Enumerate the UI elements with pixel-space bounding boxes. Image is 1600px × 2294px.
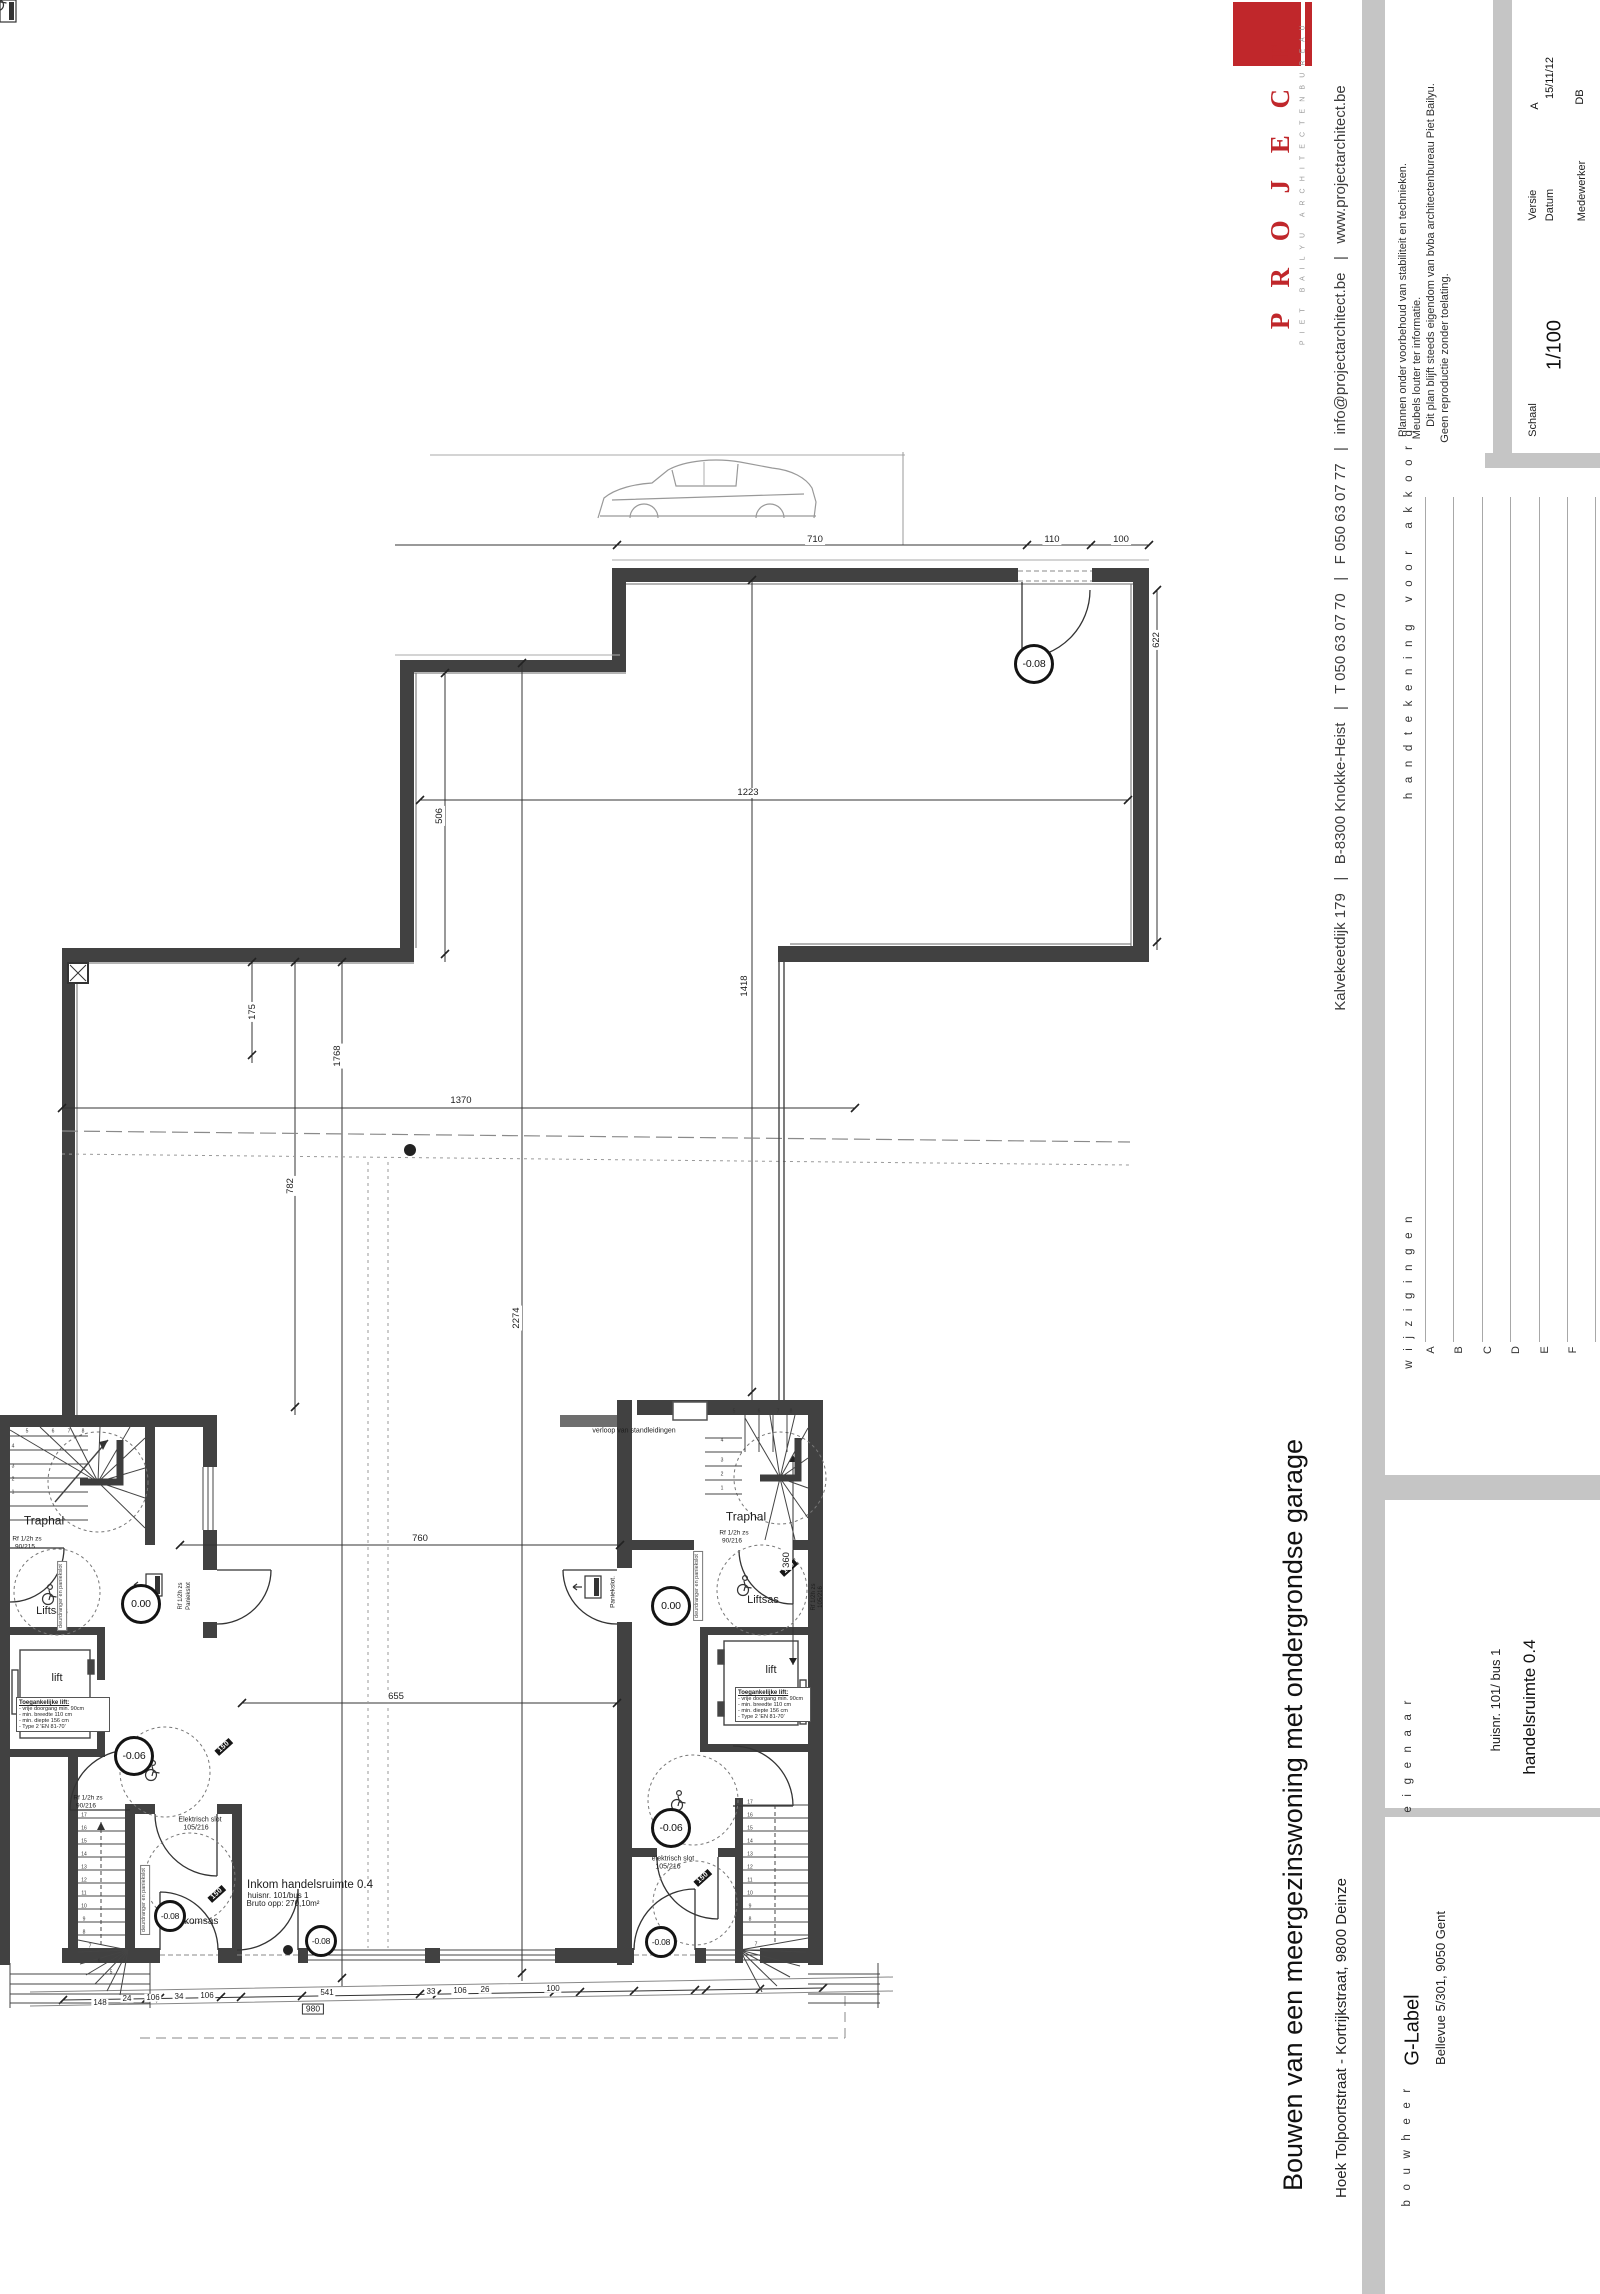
- signature-label: h a n d t e k e n i n g v o o r a k k o …: [1403, 427, 1415, 799]
- level-marker: 0.00: [651, 1586, 691, 1626]
- stair-step-number: 9: [749, 1904, 752, 1909]
- divider-eigenaar: [1385, 1475, 1600, 1500]
- revision-rule: [1425, 497, 1426, 1342]
- dimension-label: 2274: [512, 1305, 522, 1330]
- sheet-name: handelsruimte 0.4: [1521, 1639, 1539, 1774]
- stair-step-number: 8: [83, 1930, 86, 1935]
- lift-spec-line: - Type 2 'EN 81-70': [19, 1724, 107, 1730]
- plan-label: 105/216: [183, 1824, 208, 1831]
- plan-label: Traphal: [24, 1515, 64, 1528]
- stair-step-number: 9: [83, 1917, 86, 1922]
- divider-schaal: [1485, 453, 1600, 468]
- dimension-label: 100: [544, 1985, 561, 1993]
- stair-step-number: 14: [747, 1839, 753, 1844]
- plan-label: Liftsas: [747, 1595, 779, 1607]
- plan-label: 90/215: [15, 1545, 35, 1552]
- revision-letter: F: [1568, 1347, 1580, 1354]
- stair-step-number: 7: [68, 1429, 71, 1434]
- dimension-label: 1418: [740, 973, 750, 998]
- revision-rule: [1482, 497, 1483, 1342]
- stair-step-number: 13: [81, 1865, 87, 1870]
- dimension-label: 110: [1042, 535, 1061, 545]
- versie-value: A: [1530, 102, 1542, 109]
- plan-label: 105/216: [818, 1586, 824, 1608]
- stair-step-number: 12: [747, 1865, 753, 1870]
- datum-value: 15/11/12: [1545, 57, 1557, 99]
- level-marker: 0.00: [121, 1584, 161, 1624]
- level-marker: -0.06: [114, 1736, 154, 1776]
- stair-step-number: 13: [747, 1852, 753, 1857]
- dimension-lines: [62, 545, 1157, 2000]
- stair-step-number: 2: [12, 1477, 15, 1482]
- disclaimer-2: Meubels louter ter informatie.: [1412, 297, 1424, 439]
- shaft-niche: [673, 1402, 707, 1420]
- stair-step-number: 16: [81, 1826, 87, 1831]
- plan-label: Bruto opp: 270,10m²: [247, 1900, 320, 1908]
- dimension-label: 655: [386, 1692, 406, 1702]
- datum-label: Datum: [1545, 189, 1557, 221]
- plan-label: Elektrisch slot: [178, 1816, 221, 1823]
- architectural-drawing-sheet: TraphalTraphalLiftsasLiftsasliftliftInko…: [0, 0, 1600, 2294]
- stair-step-number: 17: [747, 1800, 753, 1805]
- plan-label: Rf 1/2h zs: [811, 1583, 817, 1610]
- revision-letter: C: [1483, 1346, 1495, 1354]
- lift-spec-line: - Type 2 'EN 81-70': [738, 1714, 808, 1720]
- lift-spec-box: Toegankelijke lift:- vrije doorgang min.…: [16, 1697, 110, 1732]
- plan-label: lift: [52, 1673, 63, 1685]
- stair-step-number: 8: [749, 1917, 752, 1922]
- stair-step-number: 15: [81, 1839, 87, 1844]
- stair-step-number: 8: [790, 1409, 793, 1414]
- stair-step-number: 11: [747, 1878, 752, 1883]
- stair-step-number: 10: [81, 1904, 87, 1909]
- plan-label: Paniekslot.: [611, 1576, 618, 1608]
- stair-step-number: 7: [777, 1409, 780, 1414]
- revision-letter: E: [1540, 1346, 1552, 1353]
- project-title: Bouwen van een meergezinswoning met onde…: [1279, 1439, 1307, 2191]
- revision-rule: [1453, 497, 1454, 1342]
- dimension-label: 622: [1152, 630, 1162, 650]
- column-dot: [283, 1945, 293, 1955]
- stair-step-number: 5: [110, 1970, 113, 1975]
- plan-label: Rf 1/2h zs: [12, 1537, 41, 1544]
- stair-step-number: 5: [26, 1429, 29, 1434]
- stair-step-number: 6: [758, 1409, 761, 1414]
- stair-step-number: 10: [747, 1891, 753, 1896]
- revision-rule: [1510, 497, 1511, 1342]
- dimension-label: 106: [198, 1992, 215, 2000]
- divider-bouwheer: [1385, 1808, 1600, 1817]
- shaft-stub: [560, 1415, 617, 1427]
- walls: [0, 568, 1149, 1965]
- dimension-label: 148: [91, 1999, 108, 2007]
- stair-step-number: 5: [733, 1409, 736, 1414]
- stair-step-number: 2: [721, 1472, 724, 1477]
- dimension-label: 1370: [448, 1096, 473, 1106]
- disclaimer-4: Geen reproductie zonder toelating.: [1440, 273, 1452, 442]
- dimension-label: 980: [302, 2004, 324, 2015]
- stair-step-number: 7: [89, 1944, 92, 1949]
- stair-step-number: 1: [12, 1490, 15, 1495]
- level-marker: -0.06: [651, 1808, 691, 1848]
- level-marker: -0.08: [305, 1925, 337, 1957]
- dimension-label: 34: [173, 1993, 186, 2001]
- plan-label: Rf 1/2h zs: [178, 1582, 184, 1609]
- plan-label: Rf 1/2h zs: [73, 1796, 102, 1803]
- medewerker-value: DB: [1575, 89, 1587, 104]
- plan-label: Traphal: [726, 1511, 766, 1524]
- car-sketch: [598, 460, 816, 518]
- dimension-label: 33: [425, 1988, 438, 1996]
- dashed-lines: [62, 571, 1130, 2038]
- plan-label: 105/216: [655, 1863, 680, 1870]
- disclaimer-1: Plannen onder voorbehoud van stabiliteit…: [1398, 163, 1410, 437]
- logo-wordmark: P R O J E C T: [1266, 35, 1294, 330]
- revision-rule: [1595, 497, 1596, 1342]
- level-marker: -0.08: [1014, 644, 1054, 684]
- divider-main: [1362, 0, 1385, 2294]
- bouwheer-label: b o u w h e e r: [1401, 2086, 1413, 2207]
- level-marker: -0.08: [645, 1926, 677, 1958]
- dimension-label: 506: [435, 806, 445, 826]
- sheet-number: huisnr. 101/ bus 1: [1489, 1649, 1503, 1752]
- plan-label: lift: [766, 1665, 777, 1677]
- stair-step-number: 4: [12, 1444, 15, 1449]
- floor-plan: [0, 0, 1600, 2294]
- lift-cars: [12, 1641, 806, 1738]
- disclaimer-3: Dit plan blijft steeds eigendom van bvba…: [1426, 83, 1438, 427]
- wijzigingen-label: w i j z i g i n g e n: [1403, 1213, 1415, 1368]
- dimension-label: 106: [144, 1994, 161, 2002]
- panic-exit-icons: [0, 0, 601, 1598]
- wheelchair-icons: [0, 0, 752, 1811]
- plan-label: 90/216: [722, 1539, 742, 1546]
- stair-step-number: 3: [12, 1464, 15, 1469]
- dimension-label: 26: [479, 1986, 492, 1994]
- eigenaar-label: e i g e n a a r: [1402, 1697, 1414, 1812]
- plan-label: Paniekslot: [186, 1582, 192, 1610]
- dimension-label: 360: [782, 1550, 792, 1570]
- revision-letter: B: [1455, 1346, 1467, 1353]
- dimension-label: 541: [318, 1989, 335, 1997]
- dimension-label: 24: [121, 1995, 134, 2003]
- stair-step-number: 7: [755, 1942, 758, 1947]
- stair-step-number: 12: [81, 1878, 87, 1883]
- dimension-label: 175: [248, 1002, 258, 1022]
- plan-label: Rf 1/2h zs: [719, 1531, 748, 1538]
- plan-label: deurdranger en paniekslot: [57, 1561, 67, 1631]
- stair-step-number: 14: [81, 1852, 87, 1857]
- dimension-label: 106: [451, 1987, 468, 1995]
- dimension-label: 1768: [333, 1043, 343, 1068]
- stair-step-number: 8: [82, 1429, 85, 1434]
- stair-step-number: 16: [747, 1813, 753, 1818]
- stair-step-number: 1: [721, 1486, 724, 1491]
- revision-rule: [1539, 497, 1540, 1342]
- doors: [10, 582, 1090, 1950]
- versie-label: Versie: [1528, 190, 1540, 221]
- medewerker-label: Medewerker: [1577, 161, 1589, 222]
- level-marker: -0.08: [154, 1900, 186, 1932]
- contact-line: Kalvekeetdijk 179 | B-8300 Knokke-Heist …: [1333, 85, 1349, 1010]
- bouwheer-name: G-Label: [1403, 1994, 1424, 2065]
- stair-step-number: 6: [98, 1959, 101, 1964]
- plan-label: Inkom handelsruimte 0.4: [247, 1879, 373, 1891]
- schaal-label: Schaal: [1528, 403, 1540, 437]
- stair-step-number: 6: [52, 1429, 55, 1434]
- plan-label: deurdranger en paniekslot: [693, 1551, 703, 1621]
- glazing: [203, 962, 784, 1960]
- plan-label: deurdranger en paniekslot: [140, 1865, 150, 1935]
- schaal-value: 1/100: [1545, 320, 1566, 370]
- stair-step-number: 4: [721, 1438, 724, 1443]
- divider-logo-box: [1493, 0, 1512, 455]
- revision-letter: A: [1426, 1346, 1438, 1353]
- logo-tagline: P I E T B A I L Y U A R C H I T E C T E …: [1299, 23, 1306, 345]
- lift-spec-box: Toegankelijke lift:- vrije doorgang min.…: [735, 1687, 811, 1722]
- stair-step-number: 17: [81, 1813, 87, 1818]
- dimension-label: 782: [286, 1176, 296, 1196]
- revision-letter: D: [1511, 1346, 1523, 1354]
- plan-label: elektrisch slot: [652, 1855, 694, 1862]
- dimension-label: 100: [1111, 535, 1131, 545]
- bouwheer-address: Bellevue 5/301, 9050 Gent: [1434, 1911, 1448, 2065]
- revision-rule: [1567, 497, 1568, 1342]
- dimension-ticks: [58, 541, 1161, 2004]
- column-dot: [404, 1144, 416, 1156]
- utility-box-icon: [68, 963, 88, 983]
- dimension-label: 760: [410, 1534, 430, 1544]
- dimension-label: 1223: [735, 788, 760, 798]
- dimension-label: 710: [805, 535, 825, 545]
- stair-step-number: 15: [747, 1826, 753, 1831]
- stair-step-number: 11: [81, 1891, 86, 1896]
- plan-label: 90/216: [76, 1804, 96, 1811]
- plan-label: verloop van standleidingen: [592, 1427, 675, 1434]
- stair-step-number: 3: [721, 1458, 724, 1463]
- project-address: Hoek Tolpoortstraat - Kortrijkstraat, 98…: [1334, 1878, 1350, 2198]
